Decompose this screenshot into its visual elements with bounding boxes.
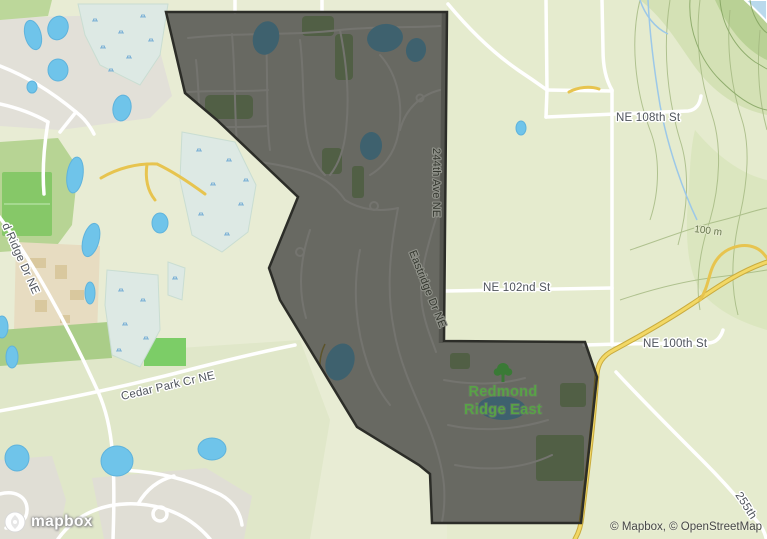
map-svg: NE 108th St NE 102nd St NE 100th St Ceda… (0, 0, 767, 539)
road-label-ne-100th: NE 100th St (643, 338, 708, 350)
area-label-line2: Ridge East (464, 402, 542, 418)
mapbox-logo-icon (4, 511, 26, 533)
area-label-line1: Redmond (469, 384, 538, 400)
road-label-244th: 244th Ave NE (430, 148, 442, 217)
road-label-ne-108th: NE 108th St (616, 112, 681, 124)
road-label-ne-102nd: NE 102nd St (483, 282, 551, 294)
map-canvas[interactable]: NE 108th St NE 102nd St NE 100th St Ceda… (0, 0, 767, 539)
map-attribution[interactable]: © Mapbox, © OpenStreetMap (610, 521, 762, 533)
mapbox-logo-text: mapbox (31, 513, 93, 531)
mapbox-logo[interactable]: mapbox (4, 511, 93, 533)
